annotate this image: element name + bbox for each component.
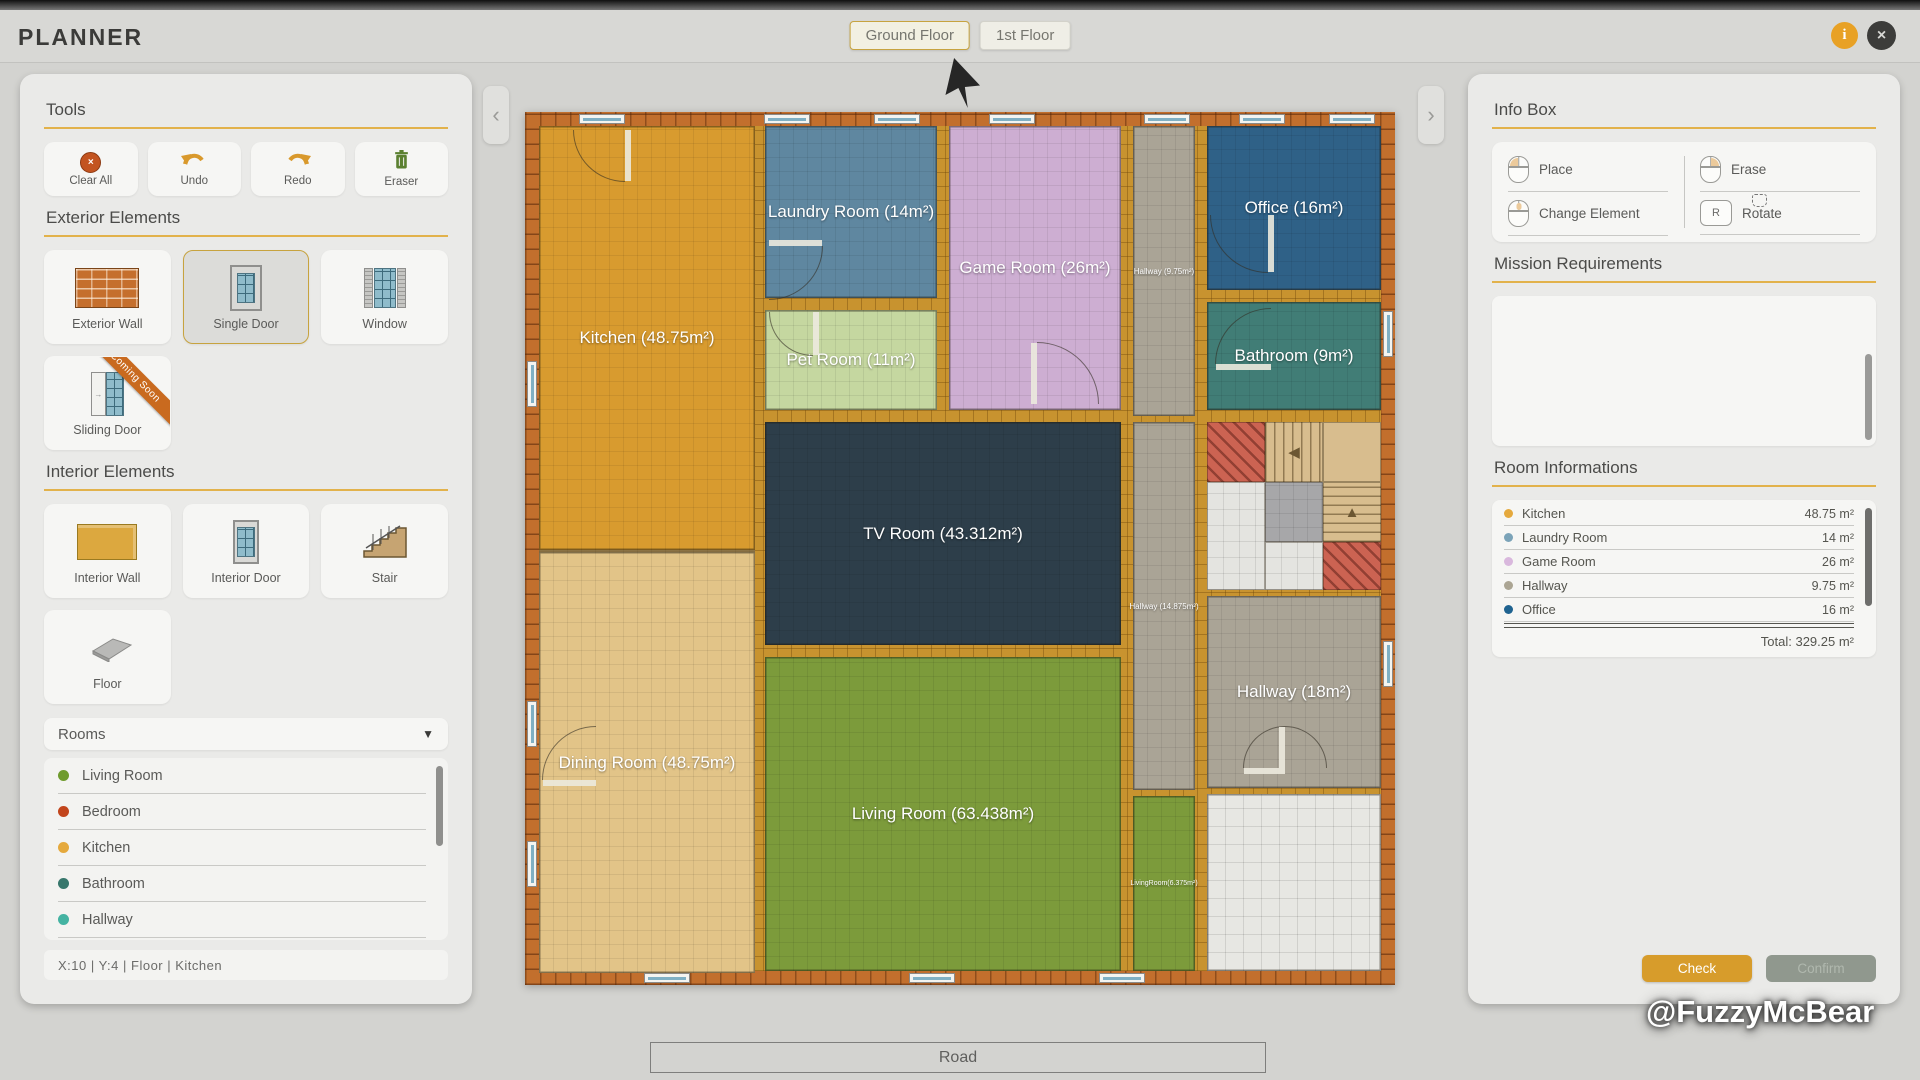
window-marker <box>1239 114 1285 124</box>
element-label: Single Door <box>213 317 278 331</box>
stair-tile-tile <box>1207 482 1265 590</box>
watermark: @FuzzyMcBear <box>1646 994 1874 1030</box>
room-color-dot <box>58 806 69 817</box>
window-marker <box>644 973 690 983</box>
tools-grid: ×Clear AllUndoRedoEraser <box>44 142 448 196</box>
window-glass <box>1103 977 1140 980</box>
window-glass <box>531 705 534 742</box>
window-marker <box>527 701 537 747</box>
mouse-right-icon <box>1700 156 1721 183</box>
window-glass <box>531 365 534 402</box>
tab-1st-floor[interactable]: 1st Floor <box>980 21 1070 50</box>
window-marker <box>1329 114 1375 124</box>
floor-tabs: Ground Floor1st Floor <box>850 21 1071 50</box>
tool-label: Undo <box>181 175 209 187</box>
room-label: Hallway (18m²) <box>1237 682 1351 702</box>
close-icon[interactable]: × <box>1867 21 1896 50</box>
element-label: Interior Door <box>211 571 280 585</box>
info-icon[interactable]: i <box>1831 22 1858 49</box>
room-info-name: Laundry Room <box>1522 530 1607 545</box>
element-label: Floor <box>93 677 121 691</box>
room-label: TV Room (43.312m²) <box>863 524 1023 544</box>
rooms-list-item-hallway[interactable]: Hallway <box>58 902 426 938</box>
room-color-dot <box>1504 509 1513 518</box>
info-action-label: Place <box>1539 162 1573 177</box>
room-label: Hallway (14.875m²) <box>1129 602 1198 611</box>
exterior-elements-grid: Exterior WallSingle DoorWindow→Sliding D… <box>44 250 448 450</box>
window-marker <box>579 114 625 124</box>
room-color-dot <box>58 770 69 781</box>
room-name: Bedroom <box>82 804 141 820</box>
tool-clear-all[interactable]: ×Clear All <box>44 142 138 196</box>
info-action-change-element: Change Element <box>1508 192 1668 236</box>
chevron-down-icon: ▼ <box>422 727 434 741</box>
room-info-row-office: Office16 m² <box>1504 598 1854 622</box>
rooms-list-scrollbar[interactable] <box>436 766 443 846</box>
stair-tile-tile <box>1265 542 1323 590</box>
room-name: Kitchen <box>82 840 130 856</box>
room-info-name: Kitchen <box>1522 506 1565 521</box>
exterior-elements-title: Exterior Elements <box>44 204 448 237</box>
right-panel: Info Box PlaceChange ElementEraseRRotate… <box>1468 74 1900 1004</box>
room-info-row-game-room: Game Room26 m² <box>1504 550 1854 574</box>
window-marker <box>909 973 955 983</box>
info-action-label: Erase <box>1731 162 1766 177</box>
window-glass <box>1243 118 1280 121</box>
element-label: Interior Wall <box>74 571 140 585</box>
window-glass <box>583 118 620 121</box>
exterior-wall-icon <box>75 263 139 313</box>
window-marker <box>764 114 810 124</box>
rooms-list-item-bathroom[interactable]: Bathroom <box>58 866 426 902</box>
window-glass <box>1387 315 1390 352</box>
room-label: Laundry Room (14m²) <box>768 202 934 222</box>
window-glass <box>768 118 805 121</box>
element-label: Stair <box>372 571 398 585</box>
window-marker <box>1144 114 1190 124</box>
stair-tile-tan <box>1323 422 1381 482</box>
room-color-dot <box>1504 557 1513 566</box>
room-name: Living Room <box>82 768 163 784</box>
tool-label: Clear All <box>69 175 112 187</box>
room-color-dot <box>1504 605 1513 614</box>
left-panel: Tools ×Clear AllUndoRedoEraser Exterior … <box>20 74 472 1004</box>
window-marker <box>527 361 537 407</box>
element-sliding-door[interactable]: →Sliding DoorComing Soon <box>44 356 171 450</box>
tool-label: Eraser <box>384 176 418 188</box>
room-hallway-strip-top[interactable]: Hallway (9.75m²) <box>1133 126 1195 416</box>
info-action-label: Rotate <box>1742 206 1782 221</box>
window-glass <box>878 118 915 121</box>
room-informations-title: Room Informations <box>1492 454 1876 487</box>
element-exterior-wall[interactable]: Exterior Wall <box>44 250 171 344</box>
window-marker <box>1383 641 1393 687</box>
room-tv-room[interactable]: TV Room (43.312m²) <box>765 422 1121 645</box>
room-color-dot <box>58 914 69 925</box>
window-marker <box>527 841 537 887</box>
room-label: Kitchen (48.75m²) <box>579 328 714 348</box>
info-action-rotate: RRotate <box>1700 192 1860 235</box>
check-button[interactable]: Check <box>1642 955 1752 982</box>
window-glass <box>648 977 685 980</box>
window-marker <box>1099 973 1145 983</box>
window-icon <box>364 263 406 313</box>
info-action-label: Change Element <box>1539 206 1640 221</box>
top-bar: PLANNER Ground Floor1st Floor i × <box>0 10 1920 63</box>
app-title: PLANNER <box>18 24 143 51</box>
collapse-right-panel-button[interactable]: › <box>1418 86 1444 144</box>
room-info-row-hallway: Hallway9.75 m² <box>1504 574 1854 598</box>
tool-label: Redo <box>284 175 312 187</box>
rooms-list-item-kitchen[interactable]: Kitchen <box>58 830 426 866</box>
room-name: Hallway <box>82 912 133 928</box>
stair-tile-hatch <box>1323 542 1381 590</box>
rooms-list-item-bedroom[interactable]: Bedroom <box>58 794 426 830</box>
total-area: Total: 329.25 m² <box>1504 632 1854 649</box>
info-box-card: PlaceChange ElementEraseRRotate <box>1492 142 1876 242</box>
tool-redo[interactable]: Redo <box>251 142 345 196</box>
room-informations-scrollbar[interactable] <box>1865 508 1872 606</box>
collapse-left-panel-button[interactable]: ‹ <box>483 86 509 144</box>
room-color-dot <box>1504 533 1513 542</box>
element-label: Window <box>362 317 406 331</box>
window-marker <box>874 114 920 124</box>
window-glass <box>531 845 534 882</box>
cursor-status-bar: X:10 | Y:4 | Floor | Kitchen <box>44 950 448 980</box>
room-color-dot <box>58 878 69 889</box>
interior-elements-grid: Interior WallInterior DoorStairFloor <box>44 504 448 704</box>
info-box-column: EraseRRotate <box>1684 148 1876 236</box>
total-separator <box>1504 623 1854 628</box>
single-door-icon <box>230 263 262 313</box>
window-glass <box>1387 645 1390 682</box>
room-color-dot <box>58 842 69 853</box>
room-color-dot <box>1504 581 1513 590</box>
room-office[interactable]: Office (16m²) <box>1207 126 1381 290</box>
key-r-icon: R <box>1700 200 1732 226</box>
rooms-dropdown-label: Rooms <box>58 726 422 743</box>
mouse-middle-icon <box>1508 200 1529 227</box>
room-label: LivingRoom(6.375m²) <box>1130 880 1197 887</box>
room-info-area: 16 m² <box>1822 603 1854 617</box>
element-label: Sliding Door <box>73 423 141 437</box>
room-name: Bathroom <box>82 876 145 892</box>
mouse-left-icon <box>1508 156 1529 183</box>
floor-icon <box>79 623 135 673</box>
element-interior-door[interactable]: Interior Door <box>183 504 310 598</box>
tab-ground-floor[interactable]: Ground Floor <box>850 21 970 50</box>
element-window[interactable]: Window <box>321 250 448 344</box>
sliding-door-icon: → <box>91 369 124 419</box>
info-box-column: PlaceChange Element <box>1492 148 1684 236</box>
window-marker <box>989 114 1035 124</box>
clear-all-icon: × <box>80 152 101 173</box>
stair-tile-stair-v: ◀ <box>1265 422 1323 482</box>
hand-cursor <box>1752 194 1767 207</box>
element-interior-wall[interactable]: Interior Wall <box>44 504 171 598</box>
room-info-area: 14 m² <box>1822 531 1854 545</box>
interior-wall-icon <box>77 517 137 567</box>
floorplan-inner: Kitchen (48.75m²)Dining Room (48.75m²)La… <box>539 126 1381 971</box>
element-stair[interactable]: Stair <box>321 504 448 598</box>
redo-icon <box>285 151 311 173</box>
rooms-list-item-office[interactable]: Office <box>58 938 426 940</box>
room-info-area: 48.75 m² <box>1805 507 1854 521</box>
room-label: Living Room (63.438m²) <box>852 804 1034 824</box>
room-living-room-strip[interactable]: LivingRoom(6.375m²) <box>1133 796 1195 971</box>
confirm-button[interactable]: Confirm <box>1766 955 1876 982</box>
element-floor[interactable]: Floor <box>44 610 171 704</box>
north-arrow-icon <box>944 58 980 108</box>
room-porch[interactable] <box>1207 794 1381 971</box>
stair-tile-landing <box>1265 482 1323 542</box>
interior-door-icon <box>233 517 259 567</box>
room-info-name: Hallway <box>1522 578 1568 593</box>
room-living-room[interactable]: Living Room (63.438m²) <box>765 657 1121 971</box>
info-action-place: Place <box>1508 148 1668 192</box>
window-marker <box>1383 311 1393 357</box>
mission-requirements-box <box>1492 296 1876 446</box>
room-label: Hallway (9.75m²) <box>1134 267 1194 276</box>
info-action-erase: Erase <box>1700 148 1860 192</box>
room-info-area: 9.75 m² <box>1812 579 1854 593</box>
mission-requirements-title: Mission Requirements <box>1492 250 1876 283</box>
room-informations-box: Kitchen48.75 m²Laundry Room14 m²Game Roo… <box>1492 500 1876 657</box>
tool-undo[interactable]: Undo <box>148 142 242 196</box>
room-kitchen[interactable]: Kitchen (48.75m²) <box>539 126 755 550</box>
interior-elements-title: Interior Elements <box>44 458 448 491</box>
rooms-list-item-living-room[interactable]: Living Room <box>58 758 426 794</box>
letterbox-strip <box>0 0 1920 10</box>
tool-eraser[interactable]: Eraser <box>355 142 449 196</box>
stairwell: ◀▲ <box>1207 422 1381 590</box>
room-info-name: Game Room <box>1522 554 1596 569</box>
room-info-area: 26 m² <box>1822 555 1854 569</box>
window-glass <box>993 118 1030 121</box>
element-single-door[interactable]: Single Door <box>183 250 310 344</box>
stair-tile-stair-h: ▲ <box>1323 482 1381 542</box>
eraser-icon <box>394 150 409 174</box>
floorplan-canvas[interactable]: Kitchen (48.75m²)Dining Room (48.75m²)La… <box>525 112 1395 985</box>
window-glass <box>913 977 950 980</box>
stair-tile-hatch <box>1207 422 1265 482</box>
rooms-dropdown[interactable]: Rooms ▼ <box>44 718 448 750</box>
info-box-title: Info Box <box>1492 96 1876 129</box>
room-info-row-laundry-room: Laundry Room14 m² <box>1504 526 1854 550</box>
element-label: Exterior Wall <box>72 317 142 331</box>
room-info-name: Office <box>1522 602 1556 617</box>
undo-icon <box>181 151 207 173</box>
mission-scrollbar[interactable] <box>1865 354 1872 440</box>
room-hallway-strip-mid[interactable]: Hallway (14.875m²) <box>1133 422 1195 790</box>
room-label: Game Room (26m²) <box>959 258 1110 278</box>
room-info-row-kitchen: Kitchen48.75 m² <box>1504 502 1854 526</box>
road-label: Road <box>650 1042 1266 1073</box>
tools-title: Tools <box>44 96 448 129</box>
rooms-list: Living RoomBedroomKitchenBathroomHallway… <box>44 758 448 940</box>
stair-icon <box>362 517 408 567</box>
window-glass <box>1148 118 1185 121</box>
window-glass <box>1333 118 1370 121</box>
